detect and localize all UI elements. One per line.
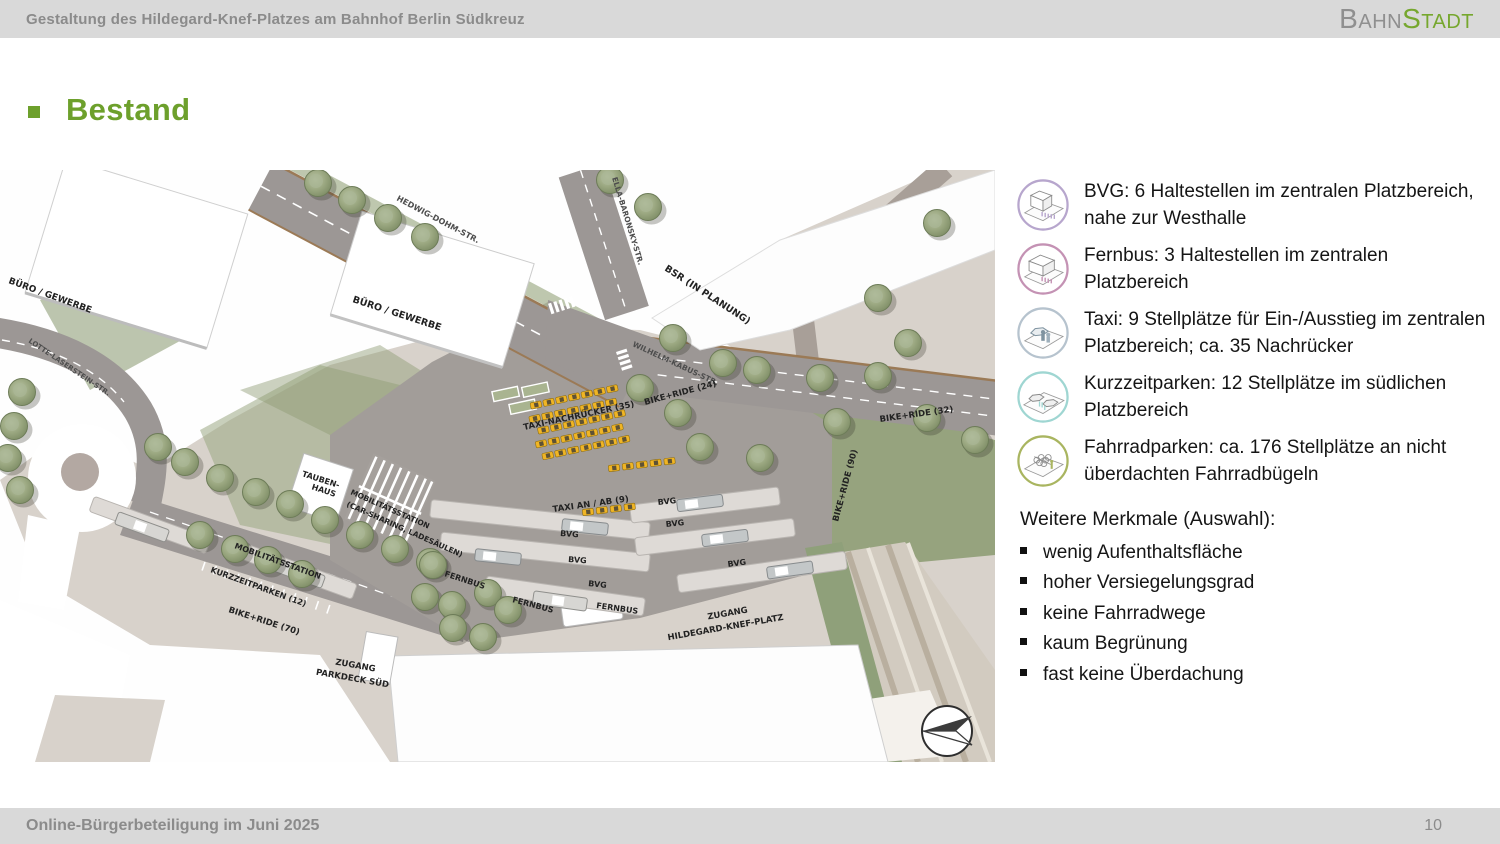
slide-title-row: Bestand bbox=[28, 92, 190, 128]
fahrradparken-icon bbox=[1016, 434, 1070, 488]
map-label: BVG bbox=[665, 518, 684, 529]
kurzzeitparken-icon bbox=[1016, 370, 1070, 424]
site-plan-map: BÜRO / GEWERBE BÜRO / GEWERBE HEDWIG-DOH… bbox=[0, 170, 995, 762]
page-title: Bestand bbox=[66, 92, 190, 128]
legend-text: BVG: 6 Haltestellen im zentralen Platzbe… bbox=[1084, 178, 1486, 232]
bullet-square bbox=[1020, 638, 1027, 645]
legend-item-bvg: BVG: 6 Haltestellen im zentralen Platzbe… bbox=[1016, 178, 1486, 232]
map-label: BVG bbox=[568, 555, 587, 565]
legend: BVG: 6 Haltestellen im zentralen Platzbe… bbox=[1016, 178, 1486, 498]
merkmale-item: hoher Versiegelungsgrad bbox=[1020, 573, 1480, 594]
merkmale-item: fast keine Überdachung bbox=[1020, 665, 1480, 686]
merkmale-section: Weitere Merkmale (Auswahl): wenig Aufent… bbox=[1020, 508, 1480, 695]
legend-item-kurzzeitparken: Kurzzeitparken: 12 Stellplätze im südlic… bbox=[1016, 370, 1486, 424]
merkmale-item: kaum Begrünung bbox=[1020, 634, 1480, 655]
footer-bar: Online-Bürgerbeteiligung im Juni 2025 10 bbox=[0, 808, 1500, 844]
legend-item-fahrradparken: Fahrradparken: ca. 176 Stellplätze an ni… bbox=[1016, 434, 1486, 488]
map-label: BVG bbox=[657, 496, 676, 507]
footer-text: Online-Bürgerbeteiligung im Juni 2025 bbox=[26, 817, 319, 835]
map-label: BVG bbox=[560, 529, 579, 539]
bahnstadt-logo: BahnStadt bbox=[1339, 5, 1474, 33]
document-title: Gestaltung des Hildegard-Knef-Platzes am… bbox=[26, 11, 525, 28]
page-number: 10 bbox=[1424, 817, 1442, 835]
bullet-square bbox=[1020, 577, 1027, 584]
legend-text: Taxi: 9 Stellplätze für Ein-/Ausstieg im… bbox=[1084, 306, 1486, 360]
taxi-icon bbox=[1016, 306, 1070, 360]
header-bar: Gestaltung des Hildegard-Knef-Platzes am… bbox=[0, 0, 1500, 38]
title-bullet-square bbox=[28, 106, 40, 118]
building-south bbox=[388, 645, 888, 762]
map-label: BVG bbox=[588, 579, 607, 590]
legend-text: Fernbus: 3 Haltestellen im zentralen Pla… bbox=[1084, 242, 1486, 296]
fernbus-stop-icon bbox=[1016, 242, 1070, 296]
bvg-stop-icon bbox=[1016, 178, 1070, 232]
logo-part-stadt: Stadt bbox=[1402, 3, 1474, 34]
bullet-square bbox=[1020, 547, 1027, 554]
bullet-square bbox=[1020, 608, 1027, 615]
merkmale-heading: Weitere Merkmale (Auswahl): bbox=[1020, 508, 1480, 531]
legend-item-taxi: Taxi: 9 Stellplätze für Ein-/Ausstieg im… bbox=[1016, 306, 1486, 360]
bullet-square bbox=[1020, 669, 1027, 676]
north-arrow bbox=[922, 706, 972, 756]
legend-item-fernbus: Fernbus: 3 Haltestellen im zentralen Pla… bbox=[1016, 242, 1486, 296]
merkmale-item: keine Fahrradwege bbox=[1020, 604, 1480, 625]
logo-part-bahn: Bahn bbox=[1339, 3, 1402, 34]
merkmale-item: wenig Aufenthaltsfläche bbox=[1020, 543, 1480, 564]
legend-text: Kurzzeitparken: 12 Stellplätze im südlic… bbox=[1084, 370, 1486, 424]
legend-text: Fahrradparken: ca. 176 Stellplätze an ni… bbox=[1084, 434, 1486, 488]
